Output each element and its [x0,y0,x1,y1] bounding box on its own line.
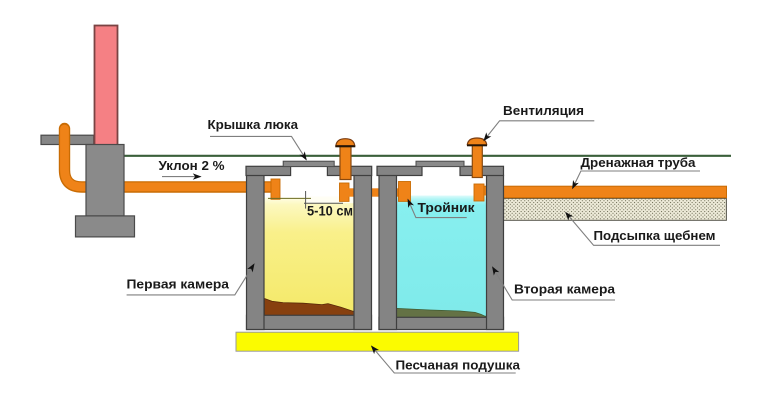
svg-text:Подсыпка щебнем: Подсыпка щебнем [594,228,716,243]
svg-text:Вентиляция: Вентиляция [503,103,584,118]
svg-text:5-10 см: 5-10 см [307,204,353,219]
svg-text:Песчаная подушка: Песчаная подушка [396,357,521,372]
svg-text:Дренажная труба: Дренажная труба [581,155,697,170]
svg-text:Вторая камера: Вторая камера [514,282,616,297]
svg-text:Тройник: Тройник [418,200,476,215]
svg-text:Уклон 2 %: Уклон 2 % [159,158,225,173]
svg-text:Первая камера: Первая камера [127,277,230,292]
svg-text:Крышка люка: Крышка люка [208,117,299,132]
